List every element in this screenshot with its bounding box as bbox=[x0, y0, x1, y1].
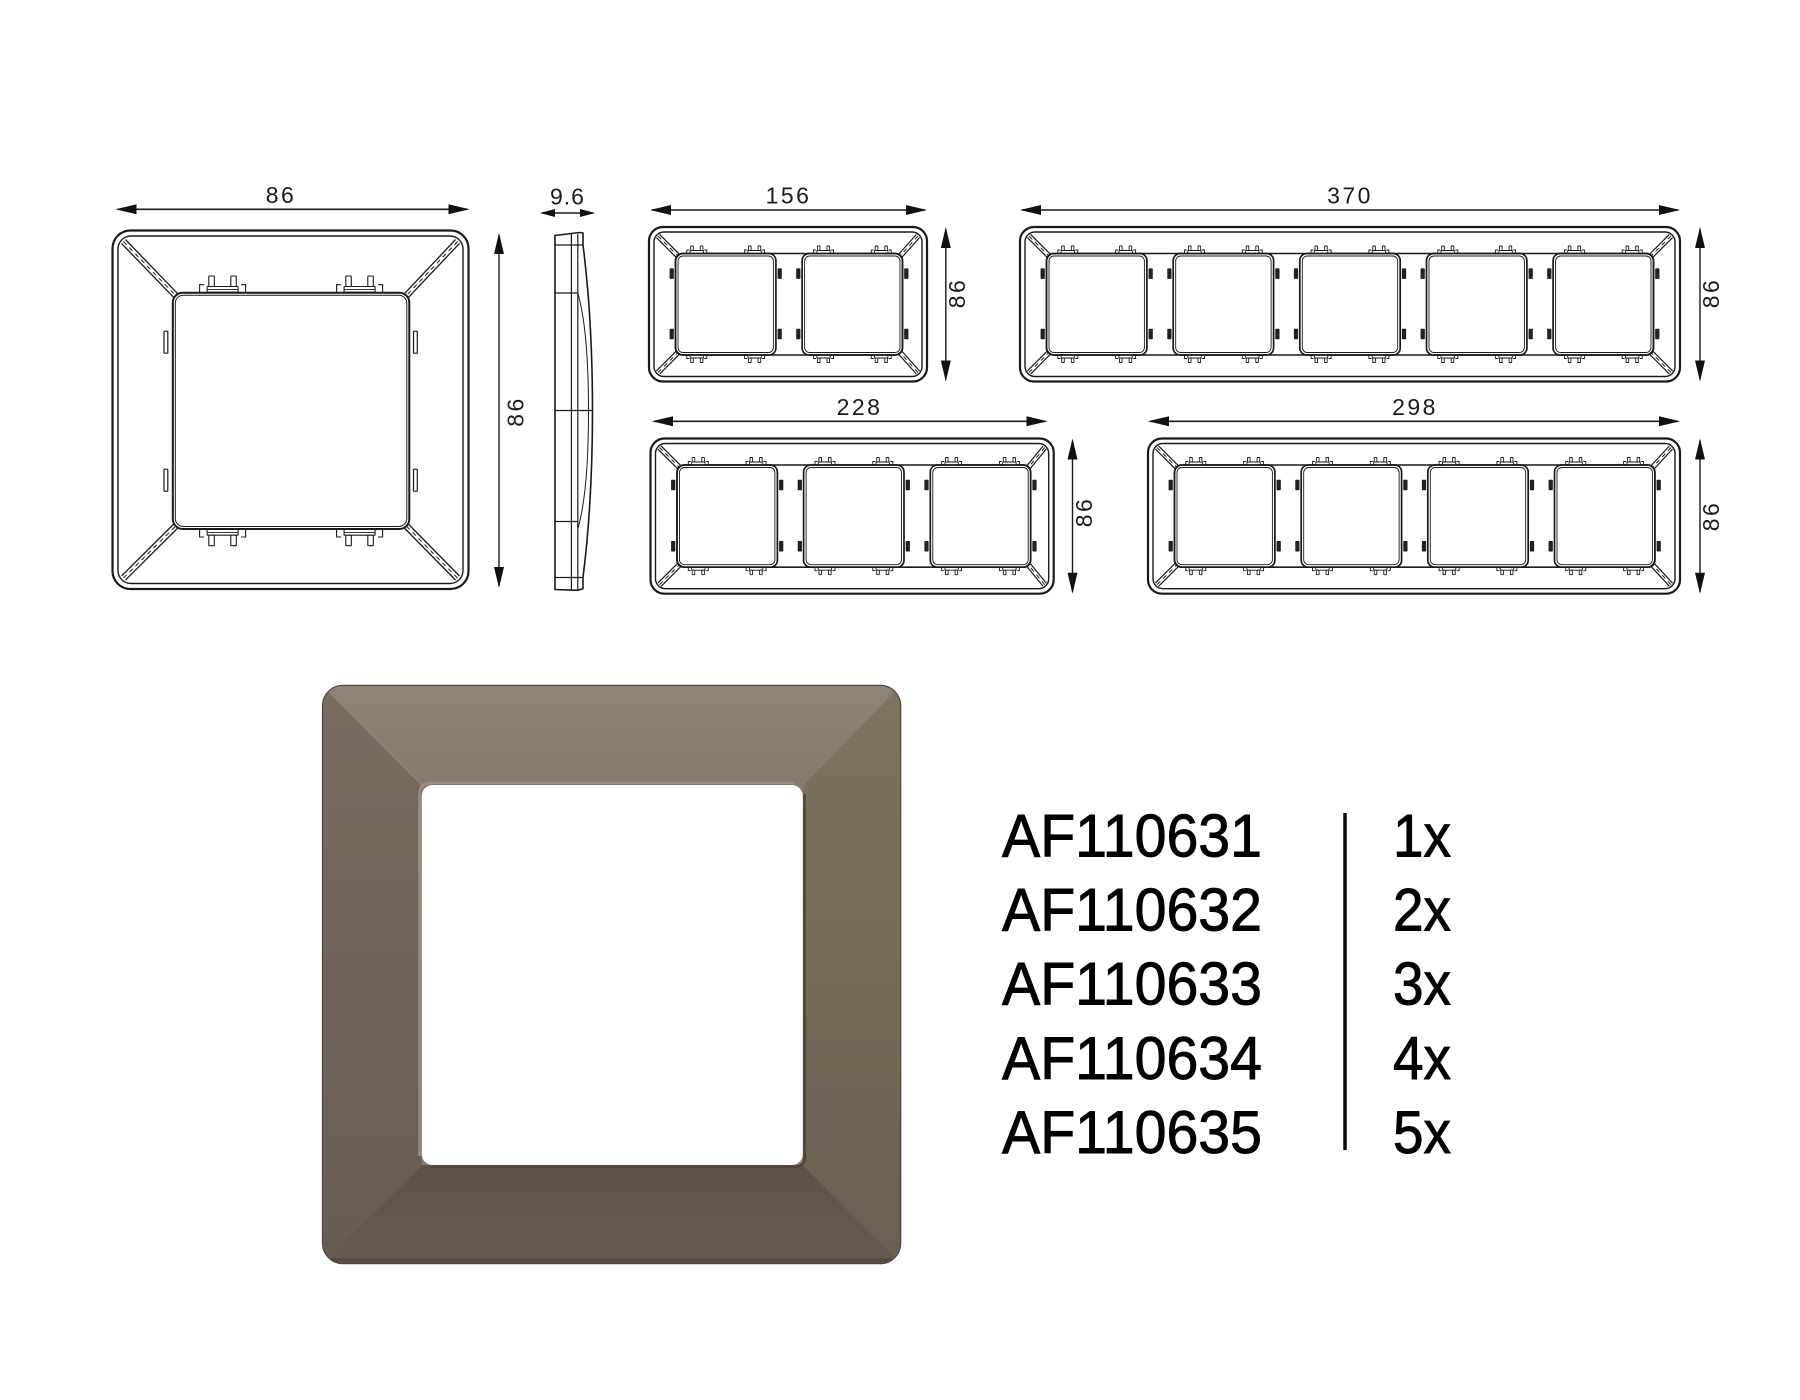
svg-text:AF110635: AF110635 bbox=[1002, 1099, 1262, 1166]
svg-text:298: 298 bbox=[1392, 394, 1438, 420]
svg-text:AF110632: AF110632 bbox=[1002, 877, 1262, 944]
svg-text:AF110633: AF110633 bbox=[1002, 951, 1262, 1018]
svg-text:5x: 5x bbox=[1393, 1099, 1451, 1166]
svg-text:AF110634: AF110634 bbox=[1002, 1025, 1262, 1092]
svg-text:156: 156 bbox=[766, 183, 812, 209]
svg-text:86: 86 bbox=[502, 396, 528, 427]
svg-text:86: 86 bbox=[266, 182, 297, 208]
svg-text:9.6: 9.6 bbox=[550, 184, 585, 210]
svg-text:AF110631: AF110631 bbox=[1002, 803, 1262, 870]
svg-text:3x: 3x bbox=[1393, 951, 1451, 1018]
svg-text:86: 86 bbox=[1698, 278, 1724, 309]
svg-text:86: 86 bbox=[944, 278, 970, 309]
svg-text:1x: 1x bbox=[1393, 803, 1451, 870]
svg-text:370: 370 bbox=[1327, 183, 1373, 209]
svg-text:86: 86 bbox=[1071, 497, 1097, 528]
svg-text:86: 86 bbox=[1698, 501, 1724, 532]
svg-text:228: 228 bbox=[837, 394, 883, 420]
svg-text:2x: 2x bbox=[1393, 877, 1451, 944]
svg-text:4x: 4x bbox=[1393, 1025, 1451, 1092]
